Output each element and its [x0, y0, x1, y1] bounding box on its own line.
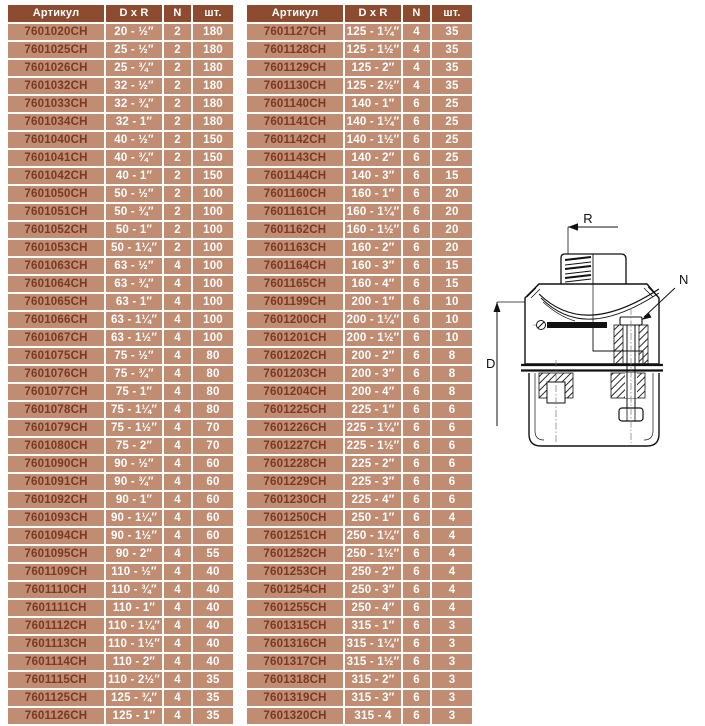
article-cell: 7601094CH — [8, 528, 104, 544]
article-cell: 7601077CH — [8, 384, 104, 400]
qty-cell: 35 — [432, 24, 472, 40]
dxr-cell: 125 - 1¼″ — [345, 24, 401, 40]
qty-cell: 10 — [432, 330, 472, 346]
article-cell: 7601041CH — [8, 150, 104, 166]
article-cell: 7601320CH — [247, 708, 343, 724]
table-row: 7601160CH160 - 1″620 — [247, 186, 474, 202]
qty-cell: 180 — [193, 60, 233, 76]
qty-cell: 8 — [432, 348, 472, 364]
table-row: 7601253CH250 - 2″64 — [247, 564, 474, 580]
table-row: 7601143CH140 - 2″625 — [247, 150, 474, 166]
qty-cell: 100 — [193, 312, 233, 328]
qty-cell: 80 — [193, 384, 233, 400]
dxr-cell: 32 - 1″ — [106, 114, 162, 130]
n-cell: 4 — [164, 528, 191, 544]
article-cell: 7601065CH — [8, 294, 104, 310]
dxr-cell: 32 - ¾″ — [106, 96, 162, 112]
dxr-cell: 250 - 1″ — [345, 510, 401, 526]
article-cell: 7601079CH — [8, 420, 104, 436]
table-header: Артикул D x R N шт. — [247, 5, 474, 22]
table-row: 7601065CH63 - 1″4100 — [8, 294, 235, 310]
qty-cell: 60 — [193, 492, 233, 508]
n-cell: 6 — [403, 636, 430, 652]
qty-cell: 60 — [193, 510, 233, 526]
qty-cell: 6 — [432, 402, 472, 418]
table-row: 7601080CH75 - 2″470 — [8, 438, 235, 454]
dxr-cell: 110 - ¾″ — [106, 582, 162, 598]
dxr-cell: 50 - ¾″ — [106, 204, 162, 220]
qty-cell: 180 — [193, 42, 233, 58]
dxr-cell: 50 - ½″ — [106, 186, 162, 202]
article-cell: 7601161CH — [247, 204, 343, 220]
dxr-cell: 40 - ½″ — [106, 132, 162, 148]
dxr-cell: 90 - 1″ — [106, 492, 162, 508]
n-cell: 6 — [403, 420, 430, 436]
article-cell: 7601067CH — [8, 330, 104, 346]
qty-cell: 6 — [432, 438, 472, 454]
table-row: 7601162CH160 - 1½″620 — [247, 222, 474, 238]
dxr-cell: 40 - 1″ — [106, 168, 162, 184]
table-row: 7601164CH160 - 3″615 — [247, 258, 474, 274]
table-row: 7601142CH140 - 1½″625 — [247, 132, 474, 148]
n-cell: 6 — [403, 654, 430, 670]
article-cell: 7601109CH — [8, 564, 104, 580]
n-cell: 4 — [164, 564, 191, 580]
qty-cell: 35 — [193, 672, 233, 688]
qty-cell: 35 — [432, 60, 472, 76]
n-cell: 4 — [164, 636, 191, 652]
table-row: 7601064CH63 - ¾″4100 — [8, 276, 235, 292]
qty-cell: 100 — [193, 258, 233, 274]
dimension-label-r: R — [583, 211, 592, 226]
n-cell: 6 — [403, 582, 430, 598]
n-cell: 4 — [164, 402, 191, 418]
table-row: 7601078CH75 - 1¼″480 — [8, 402, 235, 418]
dxr-cell: 110 - 1″ — [106, 600, 162, 616]
qty-cell: 40 — [193, 654, 233, 670]
table-row: 7601112CH110 - 1¼″440 — [8, 618, 235, 634]
qty-cell: 3 — [432, 654, 472, 670]
n-cell: 2 — [164, 24, 191, 40]
table-row: 7601093CH90 - 1¼″460 — [8, 510, 235, 526]
article-cell: 7601165CH — [247, 276, 343, 292]
dxr-cell: 200 - 1¼″ — [345, 312, 401, 328]
dxr-cell: 160 - 1½″ — [345, 222, 401, 238]
article-cell: 7601125CH — [8, 690, 104, 706]
n-cell: 6 — [403, 402, 430, 418]
article-cell: 7601032CH — [8, 78, 104, 94]
n-cell: 6 — [403, 672, 430, 688]
n-cell: 4 — [164, 366, 191, 382]
qty-cell: 15 — [432, 168, 472, 184]
dxr-cell: 125 - 2½″ — [345, 78, 401, 94]
qty-cell: 6 — [432, 420, 472, 436]
lower-body — [529, 373, 659, 446]
dxr-cell: 125 - 2″ — [345, 60, 401, 76]
article-cell: 7601052CH — [8, 222, 104, 238]
qty-cell: 25 — [432, 150, 472, 166]
n-cell: 6 — [403, 708, 430, 724]
article-cell: 7601080CH — [8, 438, 104, 454]
article-cell: 7601129CH — [247, 60, 343, 76]
table-row: 7601110CH110 - ¾″440 — [8, 582, 235, 598]
table-row: 7601067CH63 - 1½″4100 — [8, 330, 235, 346]
article-cell: 7601254CH — [247, 582, 343, 598]
n-cell: 6 — [403, 132, 430, 148]
n-cell: 2 — [164, 240, 191, 256]
qty-cell: 10 — [432, 312, 472, 328]
column-header-dxr: D x R — [345, 5, 401, 22]
n-cell: 4 — [403, 24, 430, 40]
dxr-cell: 75 - 1″ — [106, 384, 162, 400]
table-row: 7601113CH110 - 1½″440 — [8, 636, 235, 652]
qty-cell: 6 — [432, 492, 472, 508]
qty-cell: 40 — [193, 636, 233, 652]
article-cell: 7601114CH — [8, 654, 104, 670]
table-row: 7601066CH63 - 1¼″4100 — [8, 312, 235, 328]
qty-cell: 150 — [193, 132, 233, 148]
n-cell: 6 — [403, 492, 430, 508]
article-cell: 7601318CH — [247, 672, 343, 688]
n-cell: 6 — [403, 438, 430, 454]
table-row: 7601034CH32 - 1″2180 — [8, 114, 235, 130]
dxr-cell: 90 - ½″ — [106, 456, 162, 472]
n-cell: 6 — [403, 330, 430, 346]
dxr-cell: 200 - 4″ — [345, 384, 401, 400]
dxr-cell: 225 - 1¼″ — [345, 420, 401, 436]
article-cell: 7601202CH — [247, 348, 343, 364]
table-row: 7601053CH50 - 1¼″2100 — [8, 240, 235, 256]
dxr-cell: 63 - ¾″ — [106, 276, 162, 292]
n-cell: 4 — [164, 384, 191, 400]
dxr-cell: 25 - ½″ — [106, 42, 162, 58]
qty-cell: 40 — [193, 618, 233, 634]
table-row: 7601052CH50 - 1″2100 — [8, 222, 235, 238]
article-cell: 7601317CH — [247, 654, 343, 670]
table-row: 7601165CH160 - 4″615 — [247, 276, 474, 292]
n-cell: 4 — [164, 510, 191, 526]
n-cell: 2 — [164, 132, 191, 148]
dxr-cell: 90 - 1½″ — [106, 528, 162, 544]
n-cell: 6 — [403, 168, 430, 184]
arrow-up-icon — [494, 302, 501, 312]
article-cell: 7601020CH — [8, 24, 104, 40]
table-row: 7601063CH63 - ½″4100 — [8, 258, 235, 274]
article-cell: 7601163CH — [247, 240, 343, 256]
dxr-cell: 110 - 1½″ — [106, 636, 162, 652]
qty-cell: 3 — [432, 672, 472, 688]
table-row: 7601315CH315 - 1″63 — [247, 618, 474, 634]
qty-cell: 20 — [432, 240, 472, 256]
article-cell: 7601226CH — [247, 420, 343, 436]
article-cell: 7601127CH — [247, 24, 343, 40]
fitting-diagram: R — [483, 210, 698, 460]
table-row: 7601041CH40 - ¾″2150 — [8, 150, 235, 166]
n-cell: 6 — [403, 618, 430, 634]
article-cell: 7601034CH — [8, 114, 104, 130]
dxr-cell: 315 - 1¼″ — [345, 636, 401, 652]
article-cell: 7601113CH — [8, 636, 104, 652]
n-cell: 4 — [164, 330, 191, 346]
n-cell: 4 — [164, 258, 191, 274]
table-body-left: 7601020CH20 - ½″21807601025CH25 - ½″2180… — [8, 24, 235, 724]
n-cell: 6 — [403, 474, 430, 490]
dxr-cell: 225 - 3″ — [345, 474, 401, 490]
dxr-cell: 90 - 2″ — [106, 546, 162, 562]
table-row: 7601111CH110 - 1″440 — [8, 600, 235, 616]
article-cell: 7601063CH — [8, 258, 104, 274]
table-row: 7601199CH200 - 1″610 — [247, 294, 474, 310]
dxr-cell: 200 - 2″ — [345, 348, 401, 364]
threaded-outlet — [561, 254, 626, 284]
article-cell: 7601201CH — [247, 330, 343, 346]
table-row: 7601226CH225 - 1¼″66 — [247, 420, 474, 436]
table-row: 7601077CH75 - 1″480 — [8, 384, 235, 400]
article-cell: 7601040CH — [8, 132, 104, 148]
table-row: 7601141CH140 - 1¼″625 — [247, 114, 474, 130]
table-row: 7601079CH75 - 1½″470 — [8, 420, 235, 436]
article-cell: 7601126CH — [8, 708, 104, 724]
qty-cell: 25 — [432, 96, 472, 112]
column-header-qty: шт. — [193, 5, 233, 22]
table-row: 7601201CH200 - 1½″610 — [247, 330, 474, 346]
table-row: 7601161CH160 - 1¼″620 — [247, 204, 474, 220]
table-row: 7601050CH50 - ½″2100 — [8, 186, 235, 202]
article-cell: 7601075CH — [8, 348, 104, 364]
price-table-right: Артикул D x R N шт. 7601127CH125 - 1¼″43… — [247, 5, 474, 726]
dxr-cell: 225 - 1½″ — [345, 438, 401, 454]
n-cell: 2 — [164, 222, 191, 238]
dxr-cell: 200 - 1½″ — [345, 330, 401, 346]
qty-cell: 100 — [193, 294, 233, 310]
n-cell: 4 — [164, 312, 191, 328]
n-cell: 6 — [403, 528, 430, 544]
dxr-cell: 125 - 1″ — [106, 708, 162, 724]
article-cell: 7601076CH — [8, 366, 104, 382]
article-cell: 7601093CH — [8, 510, 104, 526]
dxr-cell: 140 - 3″ — [345, 168, 401, 184]
dxr-cell: 75 - 2″ — [106, 438, 162, 454]
n-cell: 6 — [403, 150, 430, 166]
table-row: 7601163CH160 - 2″620 — [247, 240, 474, 256]
table-row: 7601090CH90 - ½″460 — [8, 456, 235, 472]
article-cell: 7601091CH — [8, 474, 104, 490]
article-cell: 7601228CH — [247, 456, 343, 472]
table-row: 7601114CH110 - 2″440 — [8, 654, 235, 670]
article-cell: 7601252CH — [247, 546, 343, 562]
table-row: 7601020CH20 - ½″2180 — [8, 24, 235, 40]
dxr-cell: 140 - 1½″ — [345, 132, 401, 148]
arrow-left-icon — [568, 223, 578, 231]
table-row: 7601320CH315 - 463 — [247, 708, 474, 724]
dxr-cell: 225 - 4″ — [345, 492, 401, 508]
dxr-cell: 315 - 1½″ — [345, 654, 401, 670]
n-cell: 2 — [164, 186, 191, 202]
qty-cell: 20 — [432, 204, 472, 220]
table-row: 7601140CH140 - 1″625 — [247, 96, 474, 112]
n-cell: 4 — [164, 600, 191, 616]
n-cell: 6 — [403, 114, 430, 130]
dxr-cell: 90 - 1¼″ — [106, 510, 162, 526]
qty-cell: 100 — [193, 204, 233, 220]
table-row: 7601042CH40 - 1″2150 — [8, 168, 235, 184]
price-table-left: Артикул D x R N шт. 7601020CH20 - ½″2180… — [8, 5, 235, 726]
dxr-cell: 75 - ¾″ — [106, 366, 162, 382]
article-cell: 7601142CH — [247, 132, 343, 148]
dxr-cell: 63 - 1½″ — [106, 330, 162, 346]
column-header-article: Артикул — [247, 5, 343, 22]
table-row: 7601144CH140 - 3″615 — [247, 168, 474, 184]
qty-cell: 4 — [432, 528, 472, 544]
article-cell: 7601200CH — [247, 312, 343, 328]
article-cell: 7601319CH — [247, 690, 343, 706]
article-cell: 7601090CH — [8, 456, 104, 472]
article-cell: 7601143CH — [247, 150, 343, 166]
qty-cell: 35 — [432, 78, 472, 94]
qty-cell: 20 — [432, 186, 472, 202]
n-cell: 6 — [403, 240, 430, 256]
article-cell: 7601051CH — [8, 204, 104, 220]
article-cell: 7601229CH — [247, 474, 343, 490]
n-cell: 6 — [403, 96, 430, 112]
n-cell: 6 — [403, 690, 430, 706]
qty-cell: 180 — [193, 96, 233, 112]
dxr-cell: 140 - 1¼″ — [345, 114, 401, 130]
dxr-cell: 32 - ½″ — [106, 78, 162, 94]
column-header-article: Артикул — [8, 5, 104, 22]
table-row: 7601317CH315 - 1½″63 — [247, 654, 474, 670]
qty-cell: 25 — [432, 114, 472, 130]
article-cell: 7601199CH — [247, 294, 343, 310]
dxr-cell: 110 - 1¼″ — [106, 618, 162, 634]
table-row: 7601091CH90 - ¾″460 — [8, 474, 235, 490]
article-cell: 7601025CH — [8, 42, 104, 58]
article-cell: 7601128CH — [247, 42, 343, 58]
qty-cell: 80 — [193, 366, 233, 382]
dxr-cell: 75 - 1½″ — [106, 420, 162, 436]
dxr-cell: 25 - ¾″ — [106, 60, 162, 76]
table-row: 7601316CH315 - 1¼″63 — [247, 636, 474, 652]
n-cell: 4 — [164, 618, 191, 634]
dxr-cell: 110 - ½″ — [106, 564, 162, 580]
article-cell: 7601078CH — [8, 402, 104, 418]
qty-cell: 180 — [193, 78, 233, 94]
qty-cell: 10 — [432, 294, 472, 310]
n-cell: 6 — [403, 222, 430, 238]
dimension-d: D — [486, 302, 525, 426]
table-row: 7601032CH32 - ½″2180 — [8, 78, 235, 94]
article-cell: 7601253CH — [247, 564, 343, 580]
dxr-cell: 160 - 1″ — [345, 186, 401, 202]
dxr-cell: 250 - 2″ — [345, 564, 401, 580]
qty-cell: 4 — [432, 600, 472, 616]
qty-cell: 20 — [432, 222, 472, 238]
column-header-qty: шт. — [432, 5, 472, 22]
article-cell: 7601064CH — [8, 276, 104, 292]
article-cell: 7601050CH — [8, 186, 104, 202]
article-cell: 7601230CH — [247, 492, 343, 508]
dxr-cell: 160 - 2″ — [345, 240, 401, 256]
n-cell: 6 — [403, 186, 430, 202]
dxr-cell: 160 - 3″ — [345, 258, 401, 274]
qty-cell: 8 — [432, 366, 472, 382]
table-row: 7601251CH250 - 1¼″64 — [247, 528, 474, 544]
dxr-cell: 50 - 1¼″ — [106, 240, 162, 256]
dxr-cell: 40 - ¾″ — [106, 150, 162, 166]
qty-cell: 4 — [432, 510, 472, 526]
table-row: 7601252CH250 - 1½″64 — [247, 546, 474, 562]
qty-cell: 40 — [193, 582, 233, 598]
article-cell: 7601111CH — [8, 600, 104, 616]
table-body-right: 7601127CH125 - 1¼″4357601128CH125 - 1½″4… — [247, 24, 474, 724]
table-row: 7601128CH125 - 1½″435 — [247, 42, 474, 58]
table-row: 7601033CH32 - ¾″2180 — [8, 96, 235, 112]
article-cell: 7601316CH — [247, 636, 343, 652]
catalog-page: Артикул D x R N шт. 7601020CH20 - ½″2180… — [0, 0, 705, 726]
article-cell: 7601033CH — [8, 96, 104, 112]
n-cell: 4 — [164, 420, 191, 436]
dxr-cell: 200 - 1″ — [345, 294, 401, 310]
dxr-cell: 50 - 1″ — [106, 222, 162, 238]
table-row: 7601129CH125 - 2″435 — [247, 60, 474, 76]
dxr-cell: 63 - ½″ — [106, 258, 162, 274]
dxr-cell: 63 - 1¼″ — [106, 312, 162, 328]
n-cell: 4 — [164, 672, 191, 688]
n-cell: 6 — [403, 348, 430, 364]
article-cell: 7601164CH — [247, 258, 343, 274]
article-cell: 7601255CH — [247, 600, 343, 616]
n-cell: 6 — [403, 312, 430, 328]
table-row: 7601203CH200 - 3″68 — [247, 366, 474, 382]
qty-cell: 4 — [432, 564, 472, 580]
n-cell: 4 — [164, 456, 191, 472]
qty-cell: 60 — [193, 474, 233, 490]
qty-cell: 70 — [193, 438, 233, 454]
qty-cell: 15 — [432, 258, 472, 274]
column-header-n: N — [403, 5, 430, 22]
dxr-cell: 250 - 4″ — [345, 600, 401, 616]
qty-cell: 55 — [193, 546, 233, 562]
n-cell: 6 — [403, 366, 430, 382]
n-cell: 4 — [164, 438, 191, 454]
table-row: 7601109CH110 - ½″440 — [8, 564, 235, 580]
table-row: 7601318CH315 - 2″63 — [247, 672, 474, 688]
dxr-cell: 160 - 4″ — [345, 276, 401, 292]
table-row: 7601227CH225 - 1½″66 — [247, 438, 474, 454]
dxr-cell: 20 - ½″ — [106, 24, 162, 40]
dxr-cell: 125 - ¾″ — [106, 690, 162, 706]
qty-cell: 35 — [193, 690, 233, 706]
n-cell: 2 — [164, 204, 191, 220]
qty-cell: 100 — [193, 222, 233, 238]
article-cell: 7601140CH — [247, 96, 343, 112]
table-row: 7601051CH50 - ¾″2100 — [8, 204, 235, 220]
article-cell: 7601251CH — [247, 528, 343, 544]
article-cell: 7601203CH — [247, 366, 343, 382]
table-row: 7601225CH225 - 1″66 — [247, 402, 474, 418]
table-row: 7601250CH250 - 1″64 — [247, 510, 474, 526]
article-cell: 7601042CH — [8, 168, 104, 184]
article-cell: 7601066CH — [8, 312, 104, 328]
dxr-cell: 160 - 1¼″ — [345, 204, 401, 220]
dimension-r: R — [568, 211, 618, 256]
article-cell: 7601162CH — [247, 222, 343, 238]
n-cell: 4 — [403, 60, 430, 76]
dxr-cell: 225 - 1″ — [345, 402, 401, 418]
article-cell: 7601092CH — [8, 492, 104, 508]
table-row: 7601094CH90 - 1½″460 — [8, 528, 235, 544]
qty-cell: 150 — [193, 168, 233, 184]
